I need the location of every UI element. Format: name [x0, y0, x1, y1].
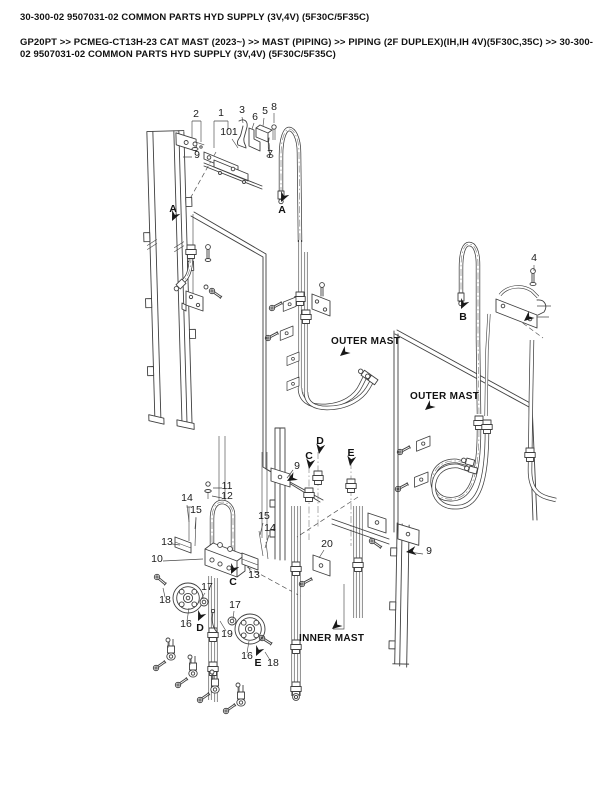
part-callout-9[interactable]: 9	[194, 149, 200, 161]
part-callout-16[interactable]: 16	[180, 618, 192, 630]
outer-mast-fitting-group-1	[264, 240, 378, 408]
bottom-fittings	[152, 638, 299, 715]
part-callout-17[interactable]: 17	[201, 581, 213, 593]
part-callout-6[interactable]: 6	[252, 111, 258, 123]
ref-label-b: B	[459, 311, 467, 323]
parts-diagram: 2131016587941112141513151491013171816171…	[0, 0, 612, 792]
callout-arrow	[405, 546, 416, 556]
callout-arrow	[329, 619, 342, 632]
part-callout-20[interactable]: 20	[321, 538, 333, 550]
callout-arrow	[252, 645, 264, 658]
outer-mast-left-channel	[141, 130, 212, 431]
callout-arrow	[194, 610, 206, 623]
part-callout-7[interactable]: 7	[267, 148, 273, 160]
inner-mast-fitting-group	[291, 452, 389, 696]
part-callout-13[interactable]: 13	[248, 569, 260, 581]
part-callout-14[interactable]: 14	[181, 492, 193, 504]
part-callout-1[interactable]: 1	[218, 107, 224, 119]
part-callout-19[interactable]: 19	[221, 628, 233, 640]
part-callout-13[interactable]: 13	[161, 536, 173, 548]
part-callout-14[interactable]: 14	[264, 522, 276, 534]
part-callout-8[interactable]: 8	[271, 101, 277, 113]
part-callout-9[interactable]: 9	[294, 460, 300, 472]
ref-label-e: E	[254, 657, 261, 669]
hose-clamp-assembly-4	[496, 269, 551, 328]
mast-panel-frame-1	[191, 212, 323, 502]
outer-mast-fitting-group-2	[394, 340, 556, 507]
part-callout-2[interactable]: 2	[193, 108, 199, 120]
parts-catalog-page: { "page": { "title": "30-300-02 9507031-…	[0, 0, 612, 792]
hose-loop-a	[278, 129, 300, 242]
part-callout-9[interactable]: 9	[426, 545, 432, 557]
part-callout-18[interactable]: 18	[159, 594, 171, 606]
part-callout-3[interactable]: 3	[239, 104, 245, 116]
part-callout-15[interactable]: 15	[190, 504, 202, 516]
part-callout-18[interactable]: 18	[267, 657, 279, 669]
part-callout-15[interactable]: 15	[258, 510, 270, 522]
ref-label-d: D	[196, 622, 204, 634]
part-callout-12[interactable]: 12	[221, 490, 233, 502]
left-channel-hose-assembly	[173, 245, 223, 311]
ref-label-c: C	[229, 576, 237, 588]
callout-arrow	[337, 346, 350, 359]
part-callout-4[interactable]: 4	[531, 252, 537, 264]
ref-label-c: C	[305, 450, 313, 462]
part-callout-16[interactable]: 16	[241, 650, 253, 662]
area-label-inner-mast: INNER MAST	[299, 633, 364, 644]
area-label-outer-mast: OUTER MAST	[410, 391, 479, 402]
part-callout-10[interactable]: 10	[151, 553, 163, 565]
part-callout-5[interactable]: 5	[262, 105, 268, 117]
part-callout-101[interactable]: 101	[220, 126, 238, 138]
part-callout-17[interactable]: 17	[229, 599, 241, 611]
area-label-outer-mast: OUTER MAST	[331, 336, 400, 347]
ref-label-a: A	[278, 204, 286, 216]
callout-arrow	[422, 400, 435, 413]
